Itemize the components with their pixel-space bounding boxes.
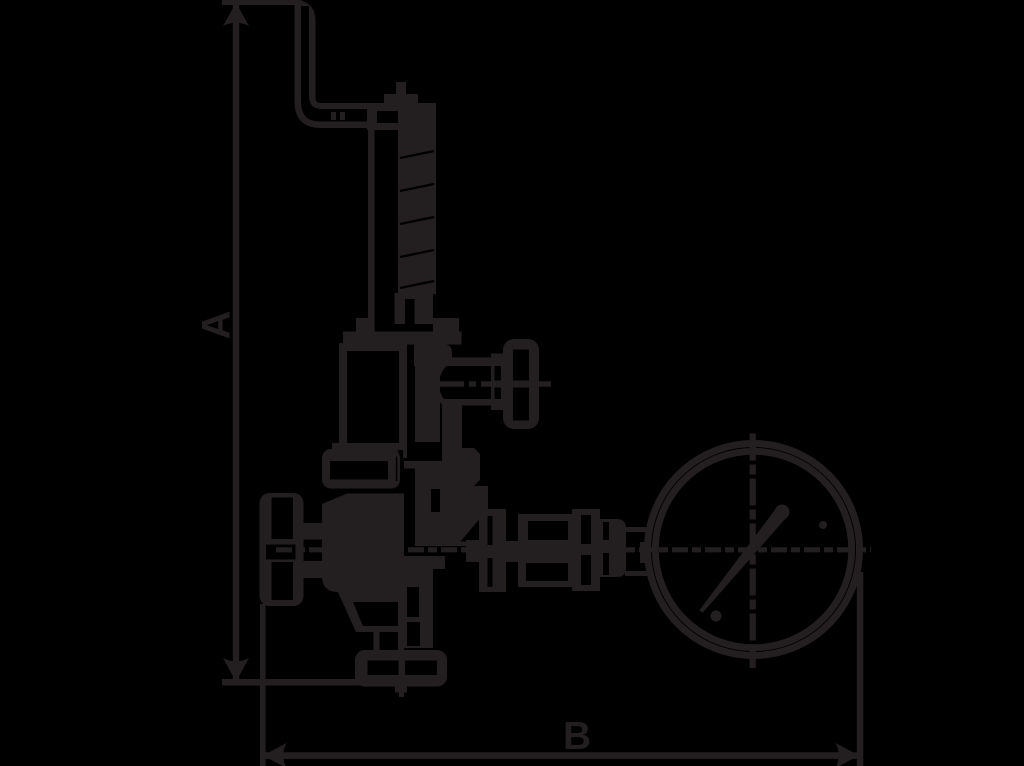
svg-text:A: A [195, 311, 239, 340]
svg-text:B: B [563, 715, 591, 758]
